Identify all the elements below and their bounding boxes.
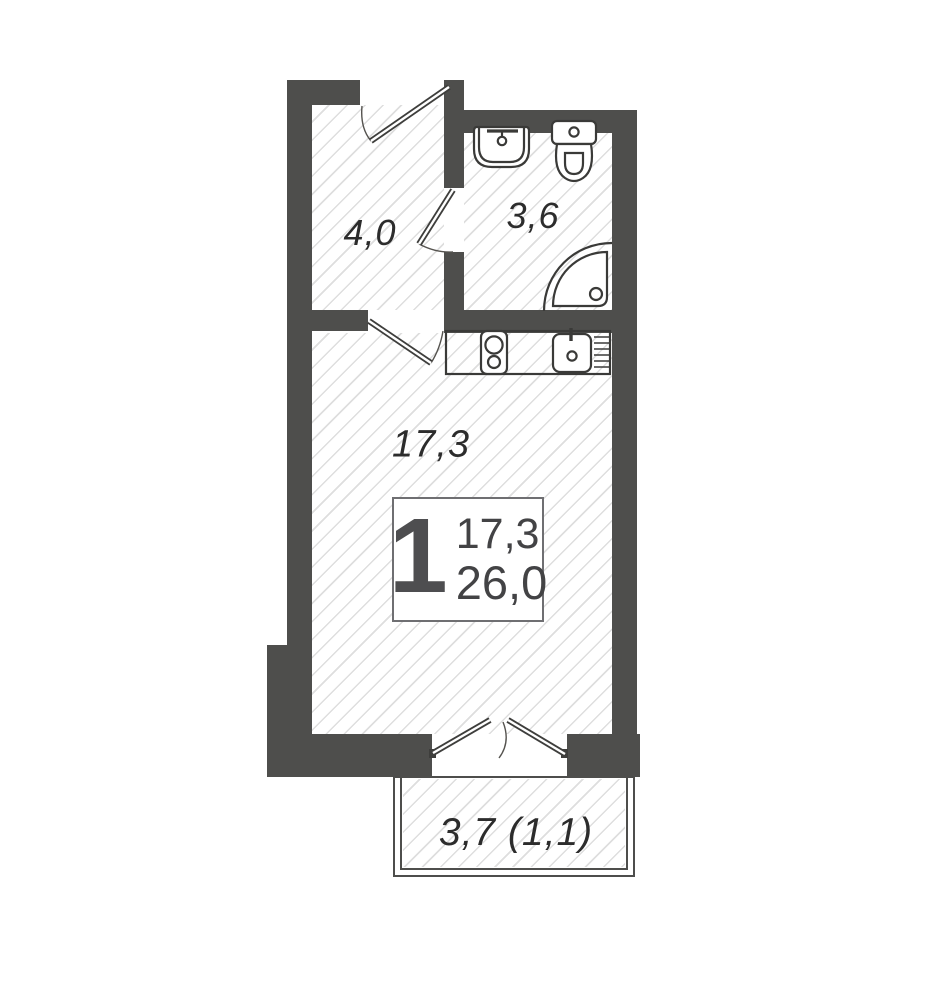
apartment-info-box: 1 17,3 26,0: [392, 497, 544, 622]
wall-bottom-left: [267, 734, 432, 777]
living-area-label: 17,3: [392, 424, 470, 467]
balcony-area-label: 3,7 (1,1): [439, 811, 593, 855]
bathroom-area-label: 3,6: [506, 195, 559, 237]
wall-right: [612, 110, 637, 777]
living-area-value: 17,3: [456, 513, 540, 556]
wall-bathroom-top: [464, 110, 637, 133]
wall-hall-bath-upper: [444, 80, 464, 188]
rooms-count: 1: [389, 509, 446, 604]
floor-plan: 4,0 3,6 17,3 3,7 (1,1) 1 17,3 26,0: [0, 0, 932, 1000]
wall-left-upper: [287, 80, 312, 645]
hallway-area-label: 4,0: [343, 212, 396, 254]
hallway-floor: [312, 105, 444, 310]
wall-kitchen-bath: [444, 310, 637, 333]
wall-hallway-stub: [312, 310, 368, 331]
total-area-value: 26,0: [456, 559, 547, 606]
